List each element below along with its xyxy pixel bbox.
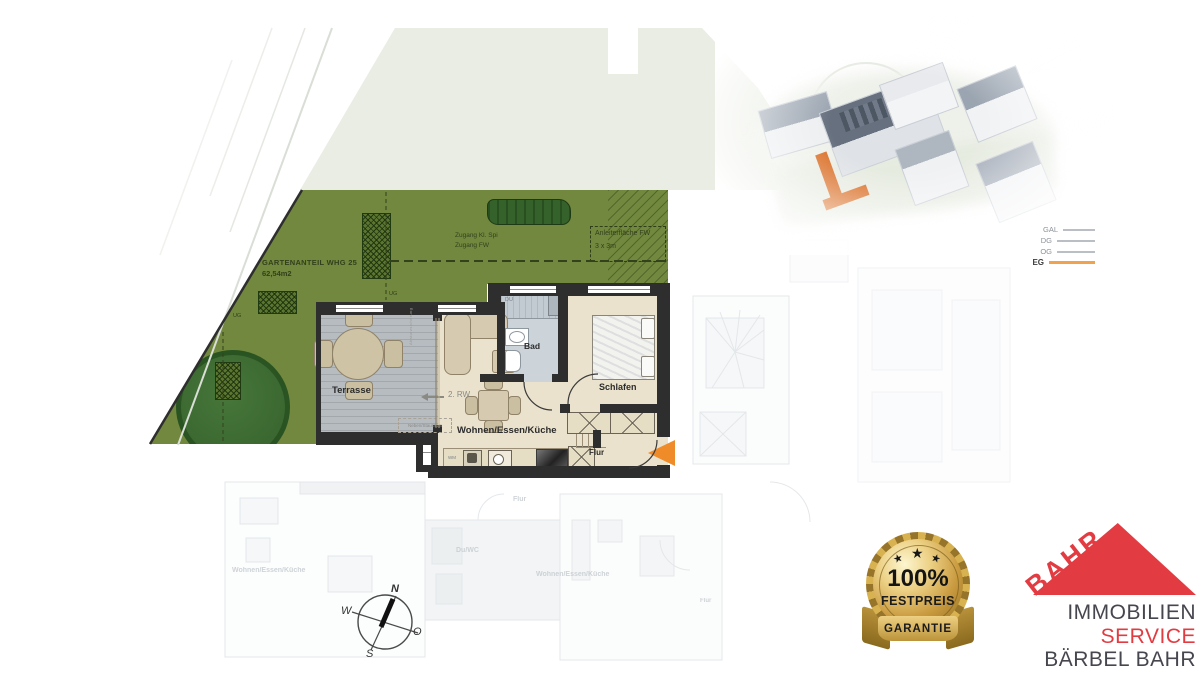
badge-value: 100%	[873, 565, 963, 593]
level-label-eg: EG	[1032, 258, 1044, 267]
aerial-rendering	[735, 30, 1095, 235]
compass-north: N	[391, 583, 399, 595]
logo-text-block: IMMOBILIEN SERVICE BÄRBEL BAHR	[1012, 601, 1196, 672]
compass-west: W	[341, 605, 351, 617]
badge-festpreis: FESTPREIS	[873, 594, 963, 608]
logo-line-service: SERVICE	[1012, 625, 1196, 649]
festpreis-badge: ★ ★ ★ 100% FESTPREIS GARANTIE	[862, 532, 974, 660]
site-plan-page: GARTENANTEIL WHG 25 62,54m2 Zugang Kl. S…	[0, 0, 1200, 675]
level-line-dg	[1057, 240, 1095, 242]
badge-garantie: GARANTIE	[884, 623, 952, 635]
level-line-og	[1057, 251, 1095, 253]
level-row-eg[interactable]: EG	[1005, 257, 1095, 268]
compass-rose	[352, 595, 418, 650]
compass-south: S	[366, 648, 373, 660]
logo-line-baerbel-bahr: BÄRBEL BAHR	[1012, 648, 1196, 672]
level-line-eg	[1049, 261, 1095, 264]
floor-level-indicator: GAL DG OG EG	[1005, 224, 1095, 268]
level-row-gal[interactable]: GAL	[1005, 224, 1095, 235]
level-row-dg[interactable]: DG	[1005, 235, 1095, 246]
level-row-og[interactable]: OG	[1005, 246, 1095, 257]
badge-ribbon-band: GARANTIE	[878, 616, 958, 641]
level-label-dg: DG	[1041, 236, 1052, 245]
level-label-gal: GAL	[1043, 225, 1058, 234]
badge-star-middle: ★	[911, 545, 924, 562]
level-label-og: OG	[1040, 247, 1052, 256]
bahr-logo: BAHR IMMOBILIEN SERVICE BÄRBEL BAHR	[1012, 515, 1200, 675]
level-line-gal	[1063, 229, 1095, 231]
logo-line-immobilien: IMMOBILIEN	[1012, 601, 1196, 625]
compass-east: O	[413, 626, 422, 638]
